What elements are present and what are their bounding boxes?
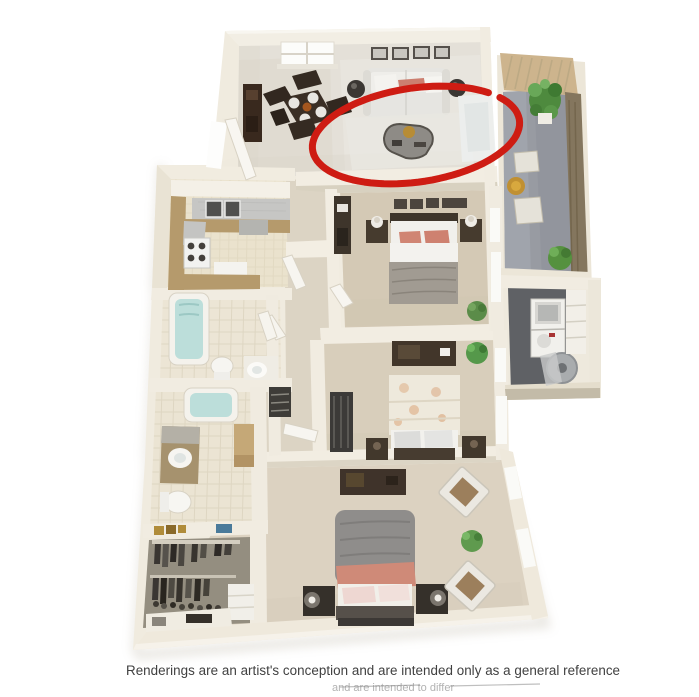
svg-text:and are intended to differ: and are intended to differ <box>332 682 454 694</box>
svg-text:Renderings are an artist's con: Renderings are an artist's conception an… <box>126 663 620 678</box>
